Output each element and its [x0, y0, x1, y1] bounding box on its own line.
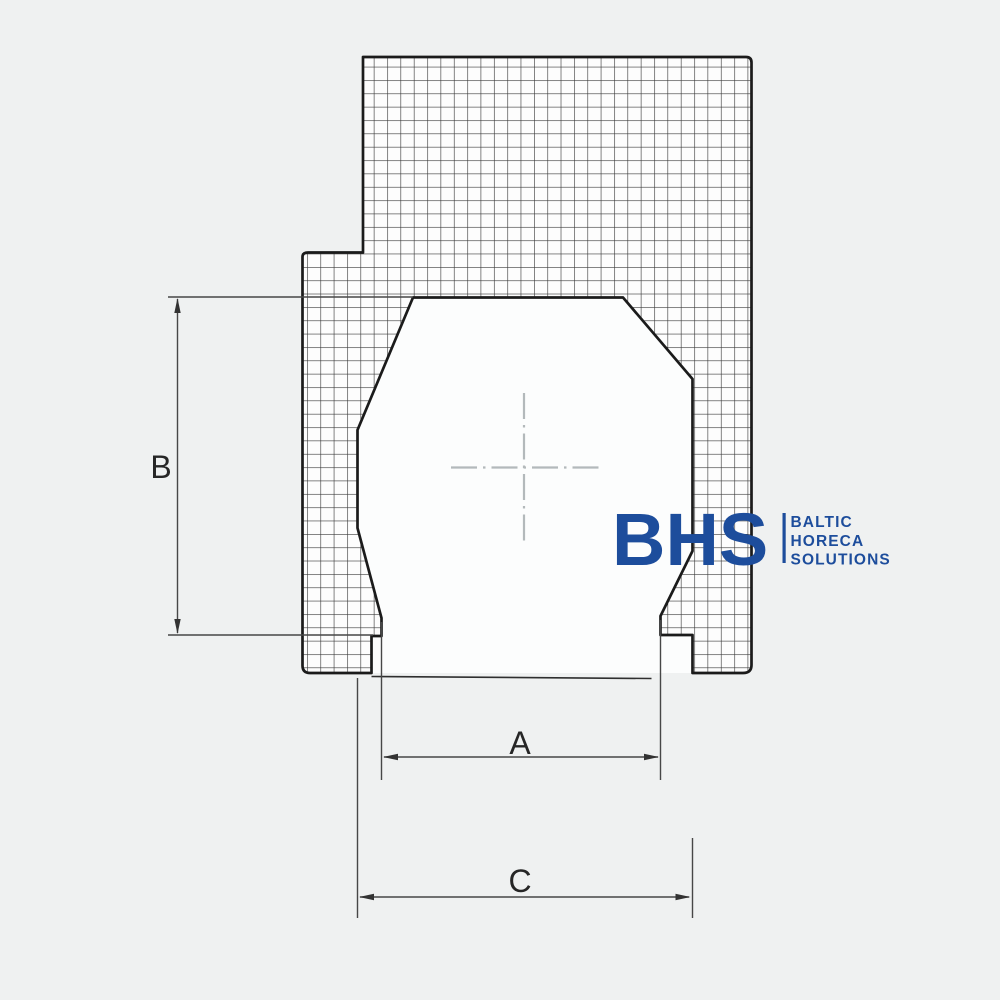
logo-monogram: BHS — [612, 498, 768, 581]
dimension-a-label: A — [509, 725, 531, 761]
screenshot-root: B A C BHS BALTIC HORECA SOLUTIONS — [0, 0, 1000, 1000]
dimension-b-label: B — [150, 449, 171, 485]
logo-separator-bar — [783, 513, 786, 563]
logo-text-baltic: BALTIC — [791, 514, 853, 531]
dimension-c-label: C — [508, 863, 531, 899]
logo-text-solutions: SOLUTIONS — [791, 552, 891, 569]
logo-text-horeca: HORECA — [791, 533, 865, 550]
technical-drawing: B A C BHS BALTIC HORECA SOLUTIONS — [0, 0, 1000, 1000]
